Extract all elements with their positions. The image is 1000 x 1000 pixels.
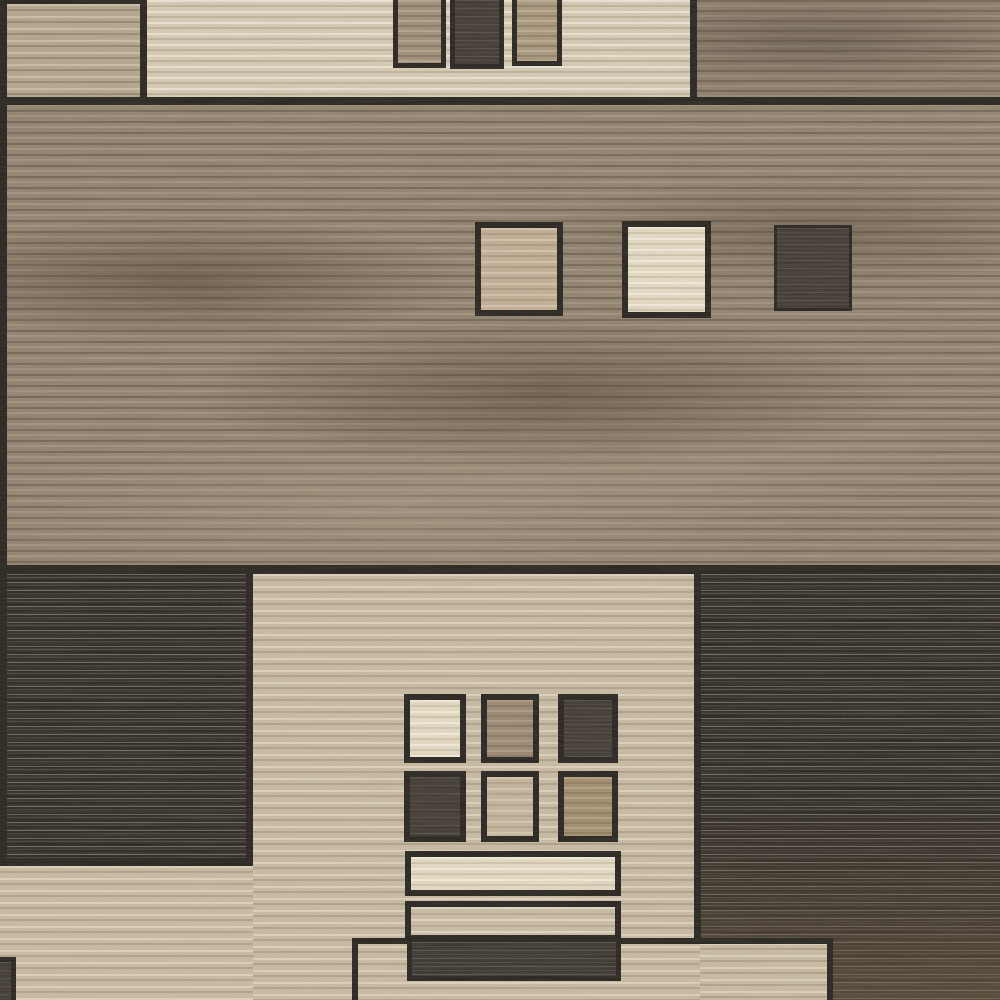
bottom-left-charcoal-block [0, 574, 253, 866]
top-right-brown-block [697, 0, 1000, 99]
top-band-square-taupe-2 [512, 0, 562, 66]
bottom-right-charcoal-block [700, 574, 1000, 1000]
divider-line-top [0, 97, 1000, 105]
left-edge-line [0, 0, 7, 866]
top-band-square-taupe [393, 0, 446, 68]
main-brown-field [0, 99, 1000, 574]
bottom-left-beige-area [0, 866, 253, 1000]
grid-square-r1c1-cream [404, 694, 466, 763]
field-square-tan [475, 222, 563, 316]
grid-square-r1c3-dark [558, 694, 618, 763]
field-square-dark [774, 225, 852, 311]
bottom-bar-dark [407, 937, 621, 981]
area-rug-photo [0, 0, 1000, 1000]
bottom-left-corner-square [0, 957, 16, 1000]
grid-square-r2c3-midbrown [558, 771, 618, 842]
grid-square-r2c1-dark [404, 771, 466, 842]
top-band-square-dark [450, 0, 504, 69]
grid-square-r1c2-brown [481, 694, 539, 763]
divider-line-middle [0, 565, 1000, 574]
field-square-cream [622, 221, 711, 318]
grid-square-r2c2-taupe [481, 771, 539, 842]
bottom-bar-cream [405, 851, 621, 896]
center-block-right-line [694, 574, 701, 943]
top-left-tan-block [0, 0, 147, 99]
bottom-bar-taupe [405, 901, 621, 941]
